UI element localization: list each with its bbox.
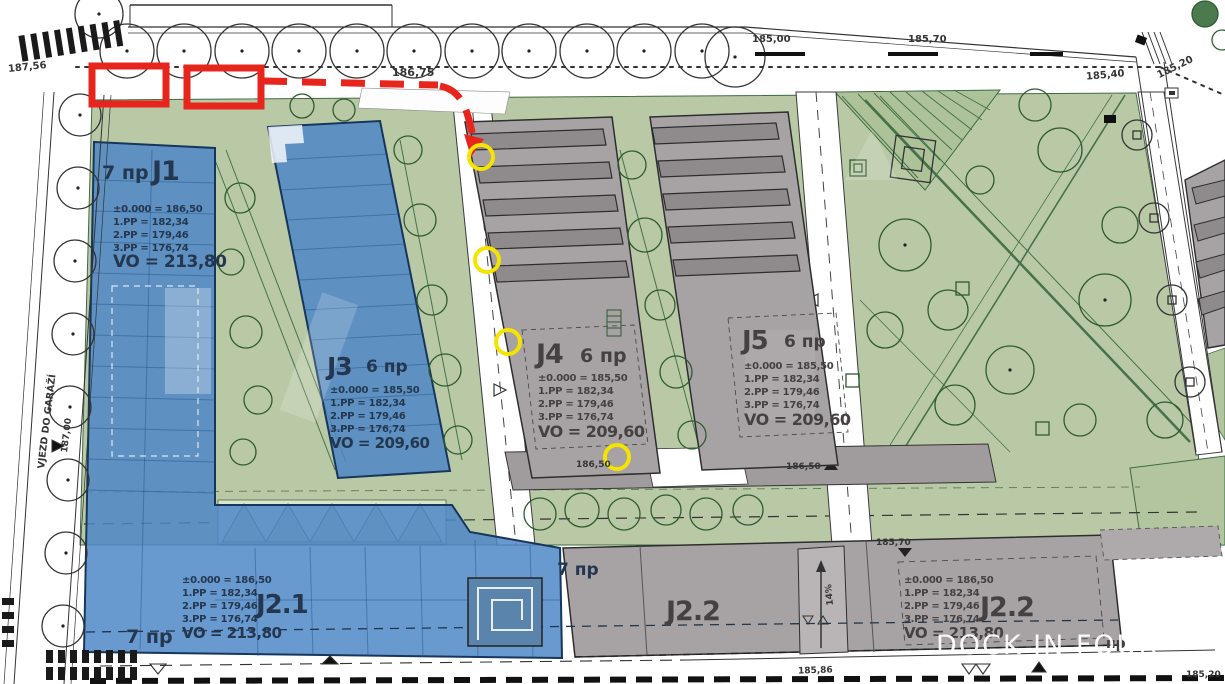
j21-id: J2.1 [256,590,308,620]
j4-line: ±0.000 = 185,50 [538,372,645,385]
j21-floors-bottom: 7 пр [126,626,173,648]
j21-line: ±0.000 = 186,50 [182,574,282,587]
spot-level-185-00: 185,00 [752,34,791,45]
j22-line: ±0.000 = 186,50 [904,574,1004,587]
j3-line: 1.PP = 182,34 [330,397,430,410]
j21-floors-top: 7 пр [557,560,599,580]
courtyard-feature [468,578,542,646]
j22-left-id: J2.2 [666,596,720,627]
j1-elevations: ±0.000 = 186,50 1.PP = 182,34 2.PP = 179… [113,203,227,269]
j5-line: 1.PP = 182,34 [744,373,851,386]
j3-elevations: ±0.000 = 185,50 1.PP = 182,34 2.PP = 179… [330,384,430,450]
road-level-186-50-right: 186,50 [786,462,821,472]
j4-floors: 6 пр [580,345,627,367]
right-bottom-pad [1100,526,1222,560]
j4-line: 2.PP = 179,46 [538,398,645,411]
j5-floors: 6 пр [784,332,826,352]
car-icon [1104,115,1116,123]
j1-line: 1.PP = 182,34 [113,216,227,229]
spot-level-185-70-b: 185,70 [876,538,911,548]
dock-in-four-watermark: DOCK IN FOUR [936,630,1159,661]
j3-line: ±0.000 = 185,50 [330,384,430,397]
site-plan: 187,56 186,75 185,00 185,70 185,40 185,2… [0,0,1225,684]
car-icon [1135,35,1147,46]
j3-id: J3 [327,352,352,381]
j4-elevations: ±0.000 = 185,50 1.PP = 182,34 2.PP = 179… [538,372,645,438]
j3-vo: VO = 209,60 [330,437,430,450]
spot-level-185-70: 185,70 [908,34,947,45]
j1-line: ±0.000 = 186,50 [113,203,227,216]
j22-right-id: J2.2 [980,592,1034,623]
j5-line: 2.PP = 179,46 [744,386,851,399]
j5-vo: VO = 209,60 [744,413,851,426]
road-level-186-50-left: 186,50 [576,460,611,470]
spot-level-185-20-b: 185,20 [1186,670,1221,680]
ramp-slope-label: 14% [824,584,836,606]
j5-elevations: ±0.000 = 185,50 1.PP = 182,34 2.PP = 179… [744,360,851,426]
annotation-red-rect-1 [92,66,166,104]
j1-line: 2.PP = 179,46 [113,229,227,242]
j4-line: 1.PP = 182,34 [538,385,645,398]
spot-level-185-86: 185,86 [798,665,833,676]
j5-id: J5 [742,326,768,356]
spot-level-186-75: 186,75 [392,66,434,79]
j1-id: J1 [152,156,179,187]
j1-floors: 7 пр [102,162,149,184]
j4-id: J4 [536,339,563,370]
j4-vo: VO = 209,60 [538,425,645,438]
j3-line: 2.PP = 179,46 [330,410,430,423]
j21-vo: VO = 213,80 [182,627,282,640]
j3-floors: 6 пр [366,357,408,377]
j5-line: ±0.000 = 185,50 [744,360,851,373]
j1-vo: VO = 213,80 [113,256,227,269]
